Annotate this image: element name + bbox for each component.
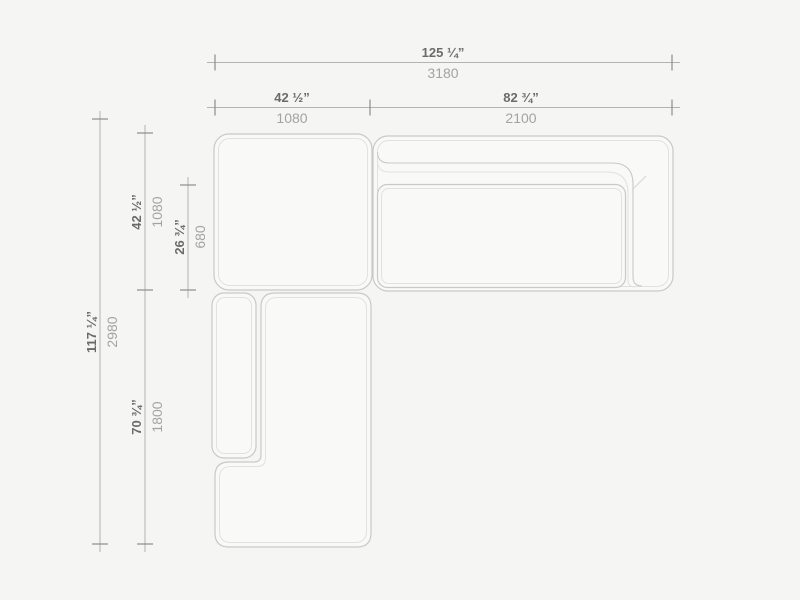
dim-label-height-bottom-inches: 70 ¾” <box>129 399 144 434</box>
right-sofa-seat-cushion <box>378 185 626 288</box>
dim-label-height-total-inches: 117 ¼” <box>84 311 99 353</box>
dim-label-width-right-mm: 2100 <box>505 110 536 126</box>
sofa-dimension-drawing: 125 ¼” 3180 42 ½” 1080 82 ¾” 2100 117 ¼”… <box>0 0 800 600</box>
dim-label-height-inner-inches: 26 ¾” <box>172 219 187 254</box>
dim-label-height-inner-mm: 680 <box>192 225 208 249</box>
corner-module-outline <box>214 134 372 290</box>
dim-label-height-total-mm: 2980 <box>104 316 120 347</box>
dim-label-width-left-inches: 42 ½” <box>274 90 309 105</box>
dim-label-width-left-mm: 1080 <box>276 110 307 126</box>
dim-label-width-total-mm: 3180 <box>427 65 458 81</box>
dim-label-width-right-inches: 82 ¾” <box>503 90 538 105</box>
chaise-armrest <box>212 293 256 458</box>
dim-label-height-top-inches: 42 ½” <box>129 194 144 229</box>
dim-label-width-total-inches: 125 ¼” <box>422 45 465 60</box>
dim-label-height-top-mm: 1080 <box>149 196 165 227</box>
dim-label-height-bottom-mm: 1800 <box>149 401 165 432</box>
